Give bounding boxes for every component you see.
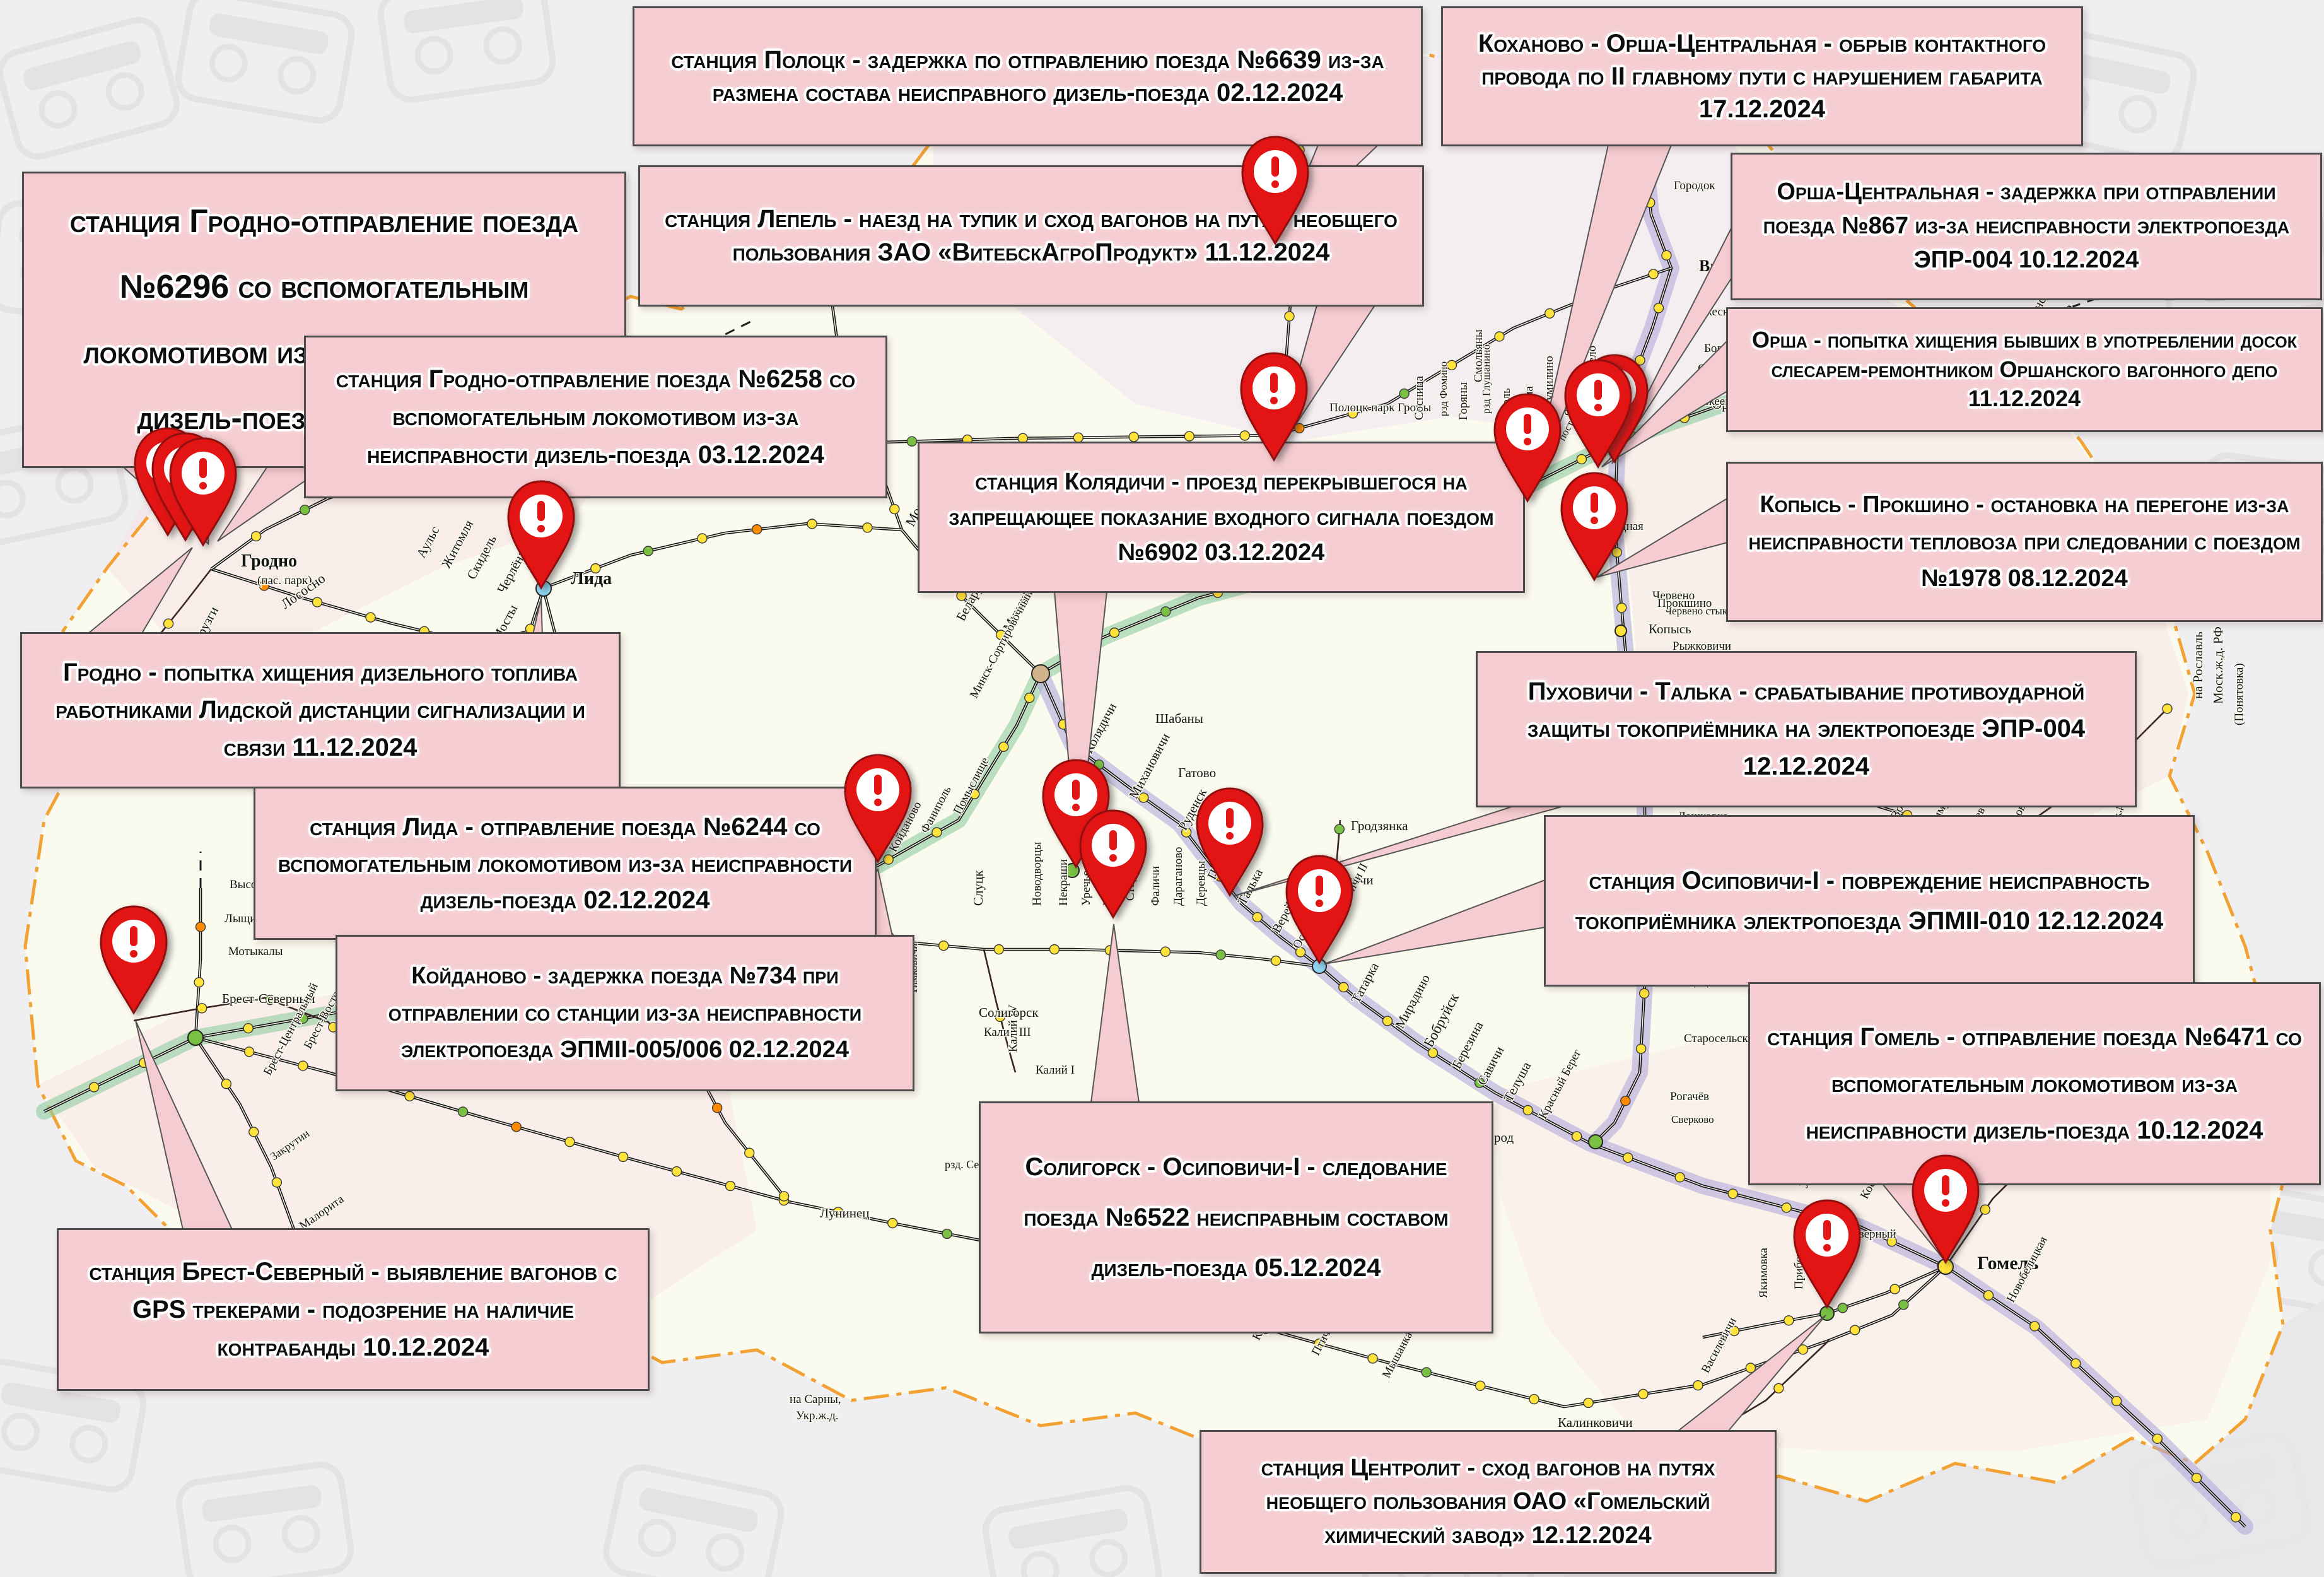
callout-text: Коханово - Орша-Центральная - обрыв конт… xyxy=(1459,27,2065,126)
station-dot xyxy=(1850,1325,1860,1335)
station-dot xyxy=(863,523,872,532)
watermark-logo xyxy=(175,0,355,124)
map-label: на Рославль xyxy=(2190,631,2205,699)
callout-text: станция Гродно-отправление поезда №6258 … xyxy=(322,360,869,474)
map-label: Гатово xyxy=(1178,765,1216,780)
station-dot xyxy=(752,525,762,534)
station-dot xyxy=(1693,1381,1703,1390)
watermark-logo xyxy=(982,1485,1162,1577)
callout-kokhanovo: Коханово - Орша-Центральная - обрыв конт… xyxy=(1441,6,2083,146)
station-dot xyxy=(672,1167,682,1176)
station-dot xyxy=(458,1107,468,1117)
callout-grodno-6258: станция Гродно-отправление поезда №6258 … xyxy=(304,336,887,498)
station-dot xyxy=(1621,1096,1630,1106)
pin-koidanovo[interactable] xyxy=(841,753,915,865)
map-label: Калий I xyxy=(1036,1064,1075,1077)
map-label: Шабаны xyxy=(1155,711,1203,726)
map-label: Городок xyxy=(1674,179,1715,192)
station-dot xyxy=(313,597,322,607)
station-dot xyxy=(745,1148,754,1158)
callout-centrolit: станция Центролит - сход вагонов на путя… xyxy=(1200,1430,1777,1574)
map-label: Моск.ж.д. РФ xyxy=(2210,626,2226,704)
map-label: (Понятовка) xyxy=(2233,663,2246,725)
station-dot xyxy=(252,532,261,541)
station-dot xyxy=(942,1229,952,1238)
callout-text: станция Брест-Северный - выявление вагон… xyxy=(75,1253,631,1366)
callout-grodno-fuel: Гродно - попытка хищения дизельного топл… xyxy=(20,632,621,788)
map-label: Калинковичи xyxy=(1558,1415,1633,1430)
callout-polotsk-6639: станция Полоцк - задержка по отправлению… xyxy=(633,6,1423,146)
callout-text: станция Лида - отправление поезда №6244 … xyxy=(272,809,858,918)
station-dot xyxy=(1890,1284,1900,1294)
node-kopys xyxy=(1615,625,1626,636)
station-dot xyxy=(726,1181,735,1191)
station-dot xyxy=(890,505,899,514)
station-dot xyxy=(907,437,916,446)
watermark-logo xyxy=(378,0,555,102)
station-dot xyxy=(1654,303,1664,313)
station-dot xyxy=(1984,1291,1994,1300)
callout-orsha-867: Орша-Центральная - задержка при отправле… xyxy=(1731,153,2322,300)
station-dot xyxy=(1271,956,1281,966)
pin-kopys[interactable] xyxy=(1557,471,1632,583)
station-dot xyxy=(245,1047,254,1057)
callout-text: Пуховичи - Талька - срабатывание противо… xyxy=(1494,673,2118,785)
railway-map-stage: Гродно(пас. парк)ЛососноПоречьеАульсЖито… xyxy=(0,0,2324,1577)
station-dot xyxy=(1383,1016,1393,1026)
station-dot xyxy=(2192,1474,2202,1483)
station-dot xyxy=(1784,1316,1794,1325)
pin-lepel[interactable] xyxy=(1237,351,1311,464)
station-dot xyxy=(1110,628,1119,638)
station-dot xyxy=(713,1103,722,1113)
station-dot xyxy=(1529,1395,1539,1404)
map-pin-icon xyxy=(166,437,240,549)
station-dot xyxy=(999,742,1008,751)
map-label: на Сарны, xyxy=(790,1393,841,1406)
station-dot xyxy=(1774,1383,1784,1393)
station-dot xyxy=(1334,824,1344,834)
callout-kopys-prokshino: Копысь - Прокшино - остановка на перегон… xyxy=(1726,462,2323,622)
station-dot xyxy=(939,941,949,951)
station-dot xyxy=(1476,1381,1485,1390)
station-dot xyxy=(1368,1354,1377,1363)
station-dot xyxy=(1662,250,1671,260)
station-dot xyxy=(298,1061,308,1070)
map-label: Горяны xyxy=(1457,382,1470,420)
station-dot xyxy=(619,1152,628,1161)
station-dot xyxy=(1640,988,1649,998)
map-label: Прокшино xyxy=(1657,597,1712,610)
map-pin-icon xyxy=(841,753,915,865)
station-dot xyxy=(1523,1106,1533,1115)
station-dot xyxy=(2112,1397,2122,1406)
pin-gomel[interactable] xyxy=(1908,1154,1983,1266)
callout-text: Гродно - попытка хищения дизельного топл… xyxy=(38,654,602,766)
station-dot xyxy=(1129,432,1138,442)
station-dot xyxy=(1184,431,1194,441)
pin-brest[interactable] xyxy=(96,905,171,1017)
map-label: Якимовка xyxy=(1757,1247,1770,1298)
map-label: Слуцк xyxy=(971,870,986,906)
callout-lida-6244: станция Лида - отправление поезда №6244 … xyxy=(254,787,877,940)
map-label: Гродно xyxy=(241,551,297,571)
callout-text: станция Центролит - сход вагонов на путя… xyxy=(1218,1451,1758,1552)
map-pin-icon xyxy=(1237,351,1311,464)
station-dot xyxy=(2071,1359,2081,1368)
map-pin-icon xyxy=(96,905,171,1017)
station-dot xyxy=(1899,1300,1908,1310)
callout-text: Орша-Центральная - задержка при отправле… xyxy=(1749,175,2304,278)
callout-pukhovichi-talka: Пуховичи - Талька - срабатывание противо… xyxy=(1476,651,2137,807)
map-pin-icon xyxy=(1561,358,1635,471)
map-pin-icon xyxy=(1557,471,1632,583)
station-dot xyxy=(1253,913,1262,922)
station-dot xyxy=(366,613,375,622)
station-dot xyxy=(1160,947,1170,956)
watermark-logo xyxy=(176,1462,353,1577)
map-pin-icon xyxy=(1076,809,1150,921)
station-dot xyxy=(1073,433,1083,442)
map-pin-icon xyxy=(1282,854,1357,966)
map-label: Дараганово xyxy=(1172,847,1185,906)
station-dot xyxy=(196,922,206,932)
station-dot xyxy=(932,828,942,837)
station-dot xyxy=(1649,269,1658,279)
station-dot xyxy=(221,1079,231,1089)
callout-text: Копысь - Прокшино - остановка на перегон… xyxy=(1744,486,2304,598)
station-dot xyxy=(1623,1153,1633,1163)
station-dot xyxy=(1422,1368,1431,1377)
station-dot xyxy=(405,1091,414,1101)
callout-soligorsk-6522: Солигорск - Осиповичи-I - следование пое… xyxy=(979,1101,1493,1334)
callout-brest-gps: станция Брест-Северный - выявление вагон… xyxy=(57,1228,650,1391)
station-dot xyxy=(1728,1189,1737,1199)
node-zhlobin xyxy=(1589,1135,1603,1149)
map-pin-icon xyxy=(1908,1154,1983,1266)
station-dot xyxy=(194,978,204,987)
pin-talka[interactable] xyxy=(1193,787,1267,899)
map-label: Солигорск xyxy=(979,1005,1039,1020)
map-label: рзд Фомино xyxy=(1437,361,1449,416)
pin-polotsk[interactable] xyxy=(1238,135,1312,247)
station-dot xyxy=(300,505,310,515)
callout-gomel-6471: станция Гомель - отправление поезда №647… xyxy=(1748,982,2321,1185)
map-label: Фаличи xyxy=(1149,866,1162,906)
callout-text: станция Полоцк - задержка по отправлению… xyxy=(651,44,1404,109)
station-dot xyxy=(1572,1132,1582,1141)
station-dot xyxy=(164,619,173,628)
station-dot xyxy=(1339,983,1348,992)
map-pin-icon xyxy=(1490,392,1565,505)
map-label: Сосница xyxy=(1413,375,1426,420)
station-dot xyxy=(249,1127,259,1137)
map-pin-icon xyxy=(504,479,578,592)
map-pin-icon xyxy=(1193,787,1267,899)
station-dot xyxy=(1285,312,1294,321)
pin-grodno-1[interactable] xyxy=(166,437,240,549)
station-dot xyxy=(2231,1513,2241,1522)
node-minsk xyxy=(1032,665,1049,683)
callout-koidanovo-734: Койданово - задержка поезда №734 при отп… xyxy=(336,935,914,1091)
station-dot xyxy=(1617,603,1626,613)
callout-osipovichi-1: станция Осиповичи-I - повреждение неиспр… xyxy=(1544,815,2195,987)
pin-verkhutino[interactable] xyxy=(1076,809,1150,921)
callout-text: Солигорск - Осиповичи-I - следование пое… xyxy=(997,1142,1475,1293)
map-pin-icon xyxy=(1790,1199,1864,1311)
pin-orsha-1[interactable] xyxy=(1561,358,1635,471)
watermark-logo xyxy=(0,15,182,161)
callout-text: станция Колядичи - проезд перекрывшегося… xyxy=(936,464,1507,571)
station-dot xyxy=(272,1178,281,1187)
station-dot xyxy=(2163,704,2172,713)
map-label: Сверково xyxy=(1671,1113,1714,1125)
station-dot xyxy=(1675,1173,1685,1182)
station-dot xyxy=(1637,1044,1646,1053)
map-label: Копысь xyxy=(1649,621,1691,636)
pin-lida[interactable] xyxy=(504,479,578,592)
station-dot xyxy=(1161,607,1171,616)
pin-kokhanovo[interactable] xyxy=(1490,392,1565,505)
watermark-logo xyxy=(602,1463,785,1577)
station-dot xyxy=(1584,1398,1593,1407)
station-dot xyxy=(197,1004,207,1013)
station-dot xyxy=(1049,945,1059,954)
station-dot xyxy=(243,1024,253,1033)
node-brest xyxy=(188,1030,203,1045)
map-label: Гродзянка xyxy=(1351,818,1408,833)
station-dot xyxy=(2030,1322,2040,1331)
station-dot xyxy=(511,1122,521,1132)
station-dot xyxy=(780,1192,789,1201)
callout-kolyadichi-6902: станция Колядичи - проезд перекрывшегося… xyxy=(918,442,1525,593)
callout-text: Орша - попытка хищения бывших в употребл… xyxy=(1744,325,2304,414)
station-dot xyxy=(1638,1390,1648,1399)
station-dot xyxy=(1399,389,1409,399)
station-dot xyxy=(643,546,653,556)
station-dot xyxy=(807,519,817,529)
station-dot xyxy=(1495,332,1504,341)
station-dot xyxy=(888,1219,897,1228)
station-dot xyxy=(698,534,707,543)
pin-osipovichi[interactable] xyxy=(1282,854,1357,966)
station-dot xyxy=(90,1082,99,1092)
station-dot xyxy=(1025,693,1034,703)
map-pin-icon xyxy=(1238,135,1312,247)
callout-text: станция Осиповичи-I - повреждение неиспр… xyxy=(1562,860,2176,941)
callout-text: Койданово - задержка поезда №734 при отп… xyxy=(354,958,896,1069)
callout-orsha-boards: Орша - попытка хищения бывших в употребл… xyxy=(1726,307,2323,432)
station-dot xyxy=(1216,950,1225,959)
callout-text: станция Гомель - отправление поезда №647… xyxy=(1766,1014,2303,1154)
map-label: Укр.ж.д. xyxy=(796,1409,839,1422)
station-dot xyxy=(1545,308,1555,318)
station-dot xyxy=(994,945,1003,954)
pin-centrolit[interactable] xyxy=(1790,1199,1864,1311)
map-label: Мотыкалы xyxy=(228,945,283,958)
station-dot xyxy=(565,1137,575,1147)
station-dot xyxy=(2152,1434,2162,1443)
map-label: Рогачёв xyxy=(1670,1090,1709,1103)
map-label: Лунинец xyxy=(820,1205,870,1221)
